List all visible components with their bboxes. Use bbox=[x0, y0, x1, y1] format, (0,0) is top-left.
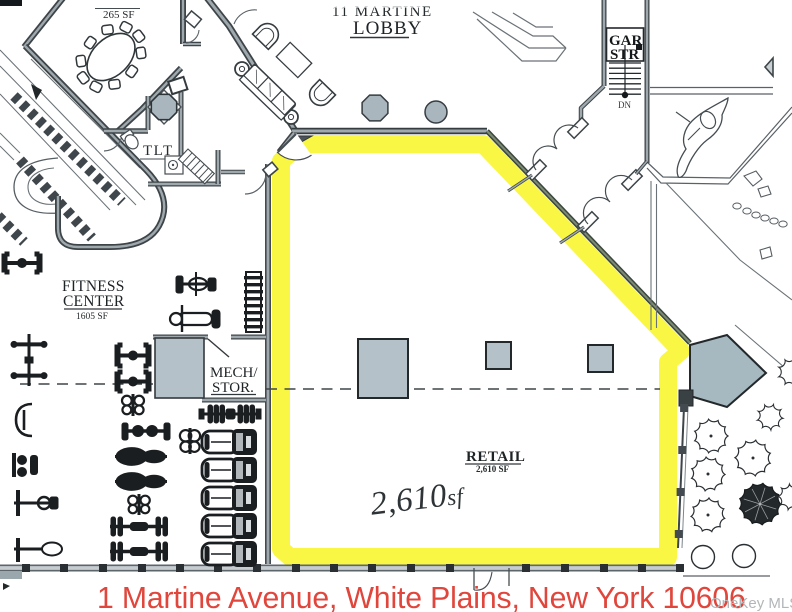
svg-text:LOBBY: LOBBY bbox=[353, 18, 422, 39]
svg-text:265 SF: 265 SF bbox=[103, 9, 135, 21]
svg-text:2,610 SF: 2,610 SF bbox=[476, 464, 510, 474]
svg-text:MECH/: MECH/ bbox=[210, 365, 258, 381]
svg-text:DN: DN bbox=[618, 100, 631, 110]
svg-text:RETAIL: RETAIL bbox=[466, 449, 525, 465]
svg-text:1605 SF: 1605 SF bbox=[76, 312, 108, 322]
svg-text:CENTER: CENTER bbox=[63, 293, 125, 310]
svg-text:STOR.: STOR. bbox=[212, 380, 254, 396]
